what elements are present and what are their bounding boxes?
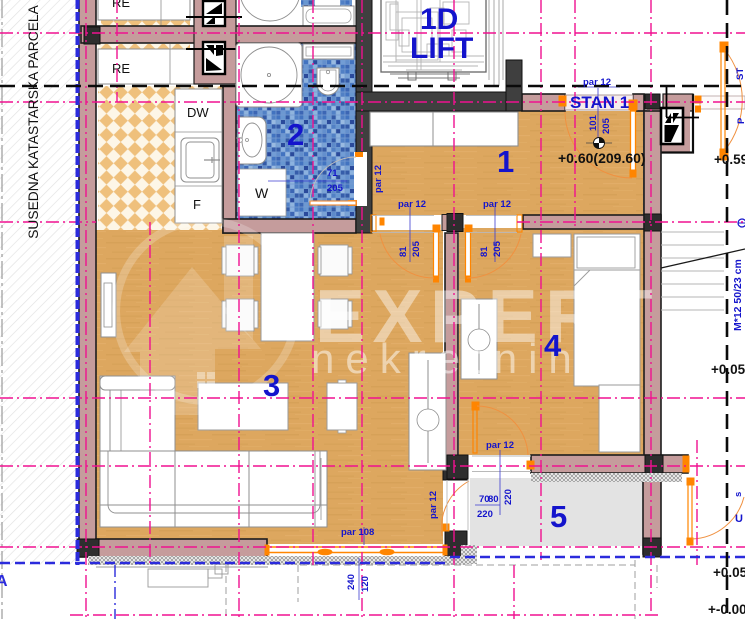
svg-text:STAN 1: STAN 1 <box>570 93 629 112</box>
svg-text:s: s <box>733 492 744 497</box>
svg-text:nekretnine: nekretnine <box>311 335 617 382</box>
svg-text:M*12 50/23 cm: M*12 50/23 cm <box>732 259 744 331</box>
svg-text:LIFT: LIFT <box>410 32 473 65</box>
svg-text:2: 2 <box>287 117 304 152</box>
svg-text:+0.59: +0.59 <box>714 152 745 167</box>
svg-text:par 12: par 12 <box>398 199 426 210</box>
svg-text:4: 4 <box>544 328 562 363</box>
svg-text:par 12: par 12 <box>486 440 514 451</box>
svg-text:par 12: par 12 <box>373 165 384 193</box>
svg-text:+0.05: +0.05 <box>713 565 745 580</box>
svg-text:W: W <box>255 185 269 201</box>
svg-text:par 12: par 12 <box>583 77 611 88</box>
svg-text:81: 81 <box>398 246 409 257</box>
svg-text:240: 240 <box>346 574 357 590</box>
svg-text:RE: RE <box>112 61 130 76</box>
svg-text:DW: DW <box>187 105 209 120</box>
svg-text:+0.60(209.60): +0.60(209.60) <box>558 150 646 166</box>
svg-text:U: U <box>735 513 743 525</box>
svg-text:F: F <box>193 197 201 212</box>
svg-text:80: 80 <box>488 494 499 505</box>
svg-text:71: 71 <box>327 168 338 179</box>
svg-text:+-0.00: +-0.00 <box>708 602 745 617</box>
svg-text:101: 101 <box>588 114 599 131</box>
svg-text:220: 220 <box>477 509 493 520</box>
svg-text:205: 205 <box>327 183 344 194</box>
svg-text:205: 205 <box>411 240 422 257</box>
svg-text:220: 220 <box>503 489 514 505</box>
svg-text:par 12: par 12 <box>483 199 511 210</box>
svg-text:120: 120 <box>360 576 371 592</box>
svg-text:RE: RE <box>112 0 130 10</box>
svg-text:ST: ST <box>735 68 745 80</box>
svg-text:205: 205 <box>601 117 612 134</box>
svg-text:+0.05: +0.05 <box>711 362 745 377</box>
svg-text:81: 81 <box>479 246 490 257</box>
svg-text:1: 1 <box>497 144 514 179</box>
svg-text:par 12: par 12 <box>428 491 439 519</box>
svg-text:par 108: par 108 <box>341 527 374 538</box>
svg-text:5: 5 <box>550 499 567 534</box>
svg-text:A: A <box>0 573 8 590</box>
svg-text:205: 205 <box>492 240 503 257</box>
svg-text:SUSEDNA KATASTARSKA PARCELA: SUSEDNA KATASTARSKA PARCELA <box>26 4 41 238</box>
svg-text:3: 3 <box>263 368 280 403</box>
svg-text:P: P <box>736 117 745 124</box>
